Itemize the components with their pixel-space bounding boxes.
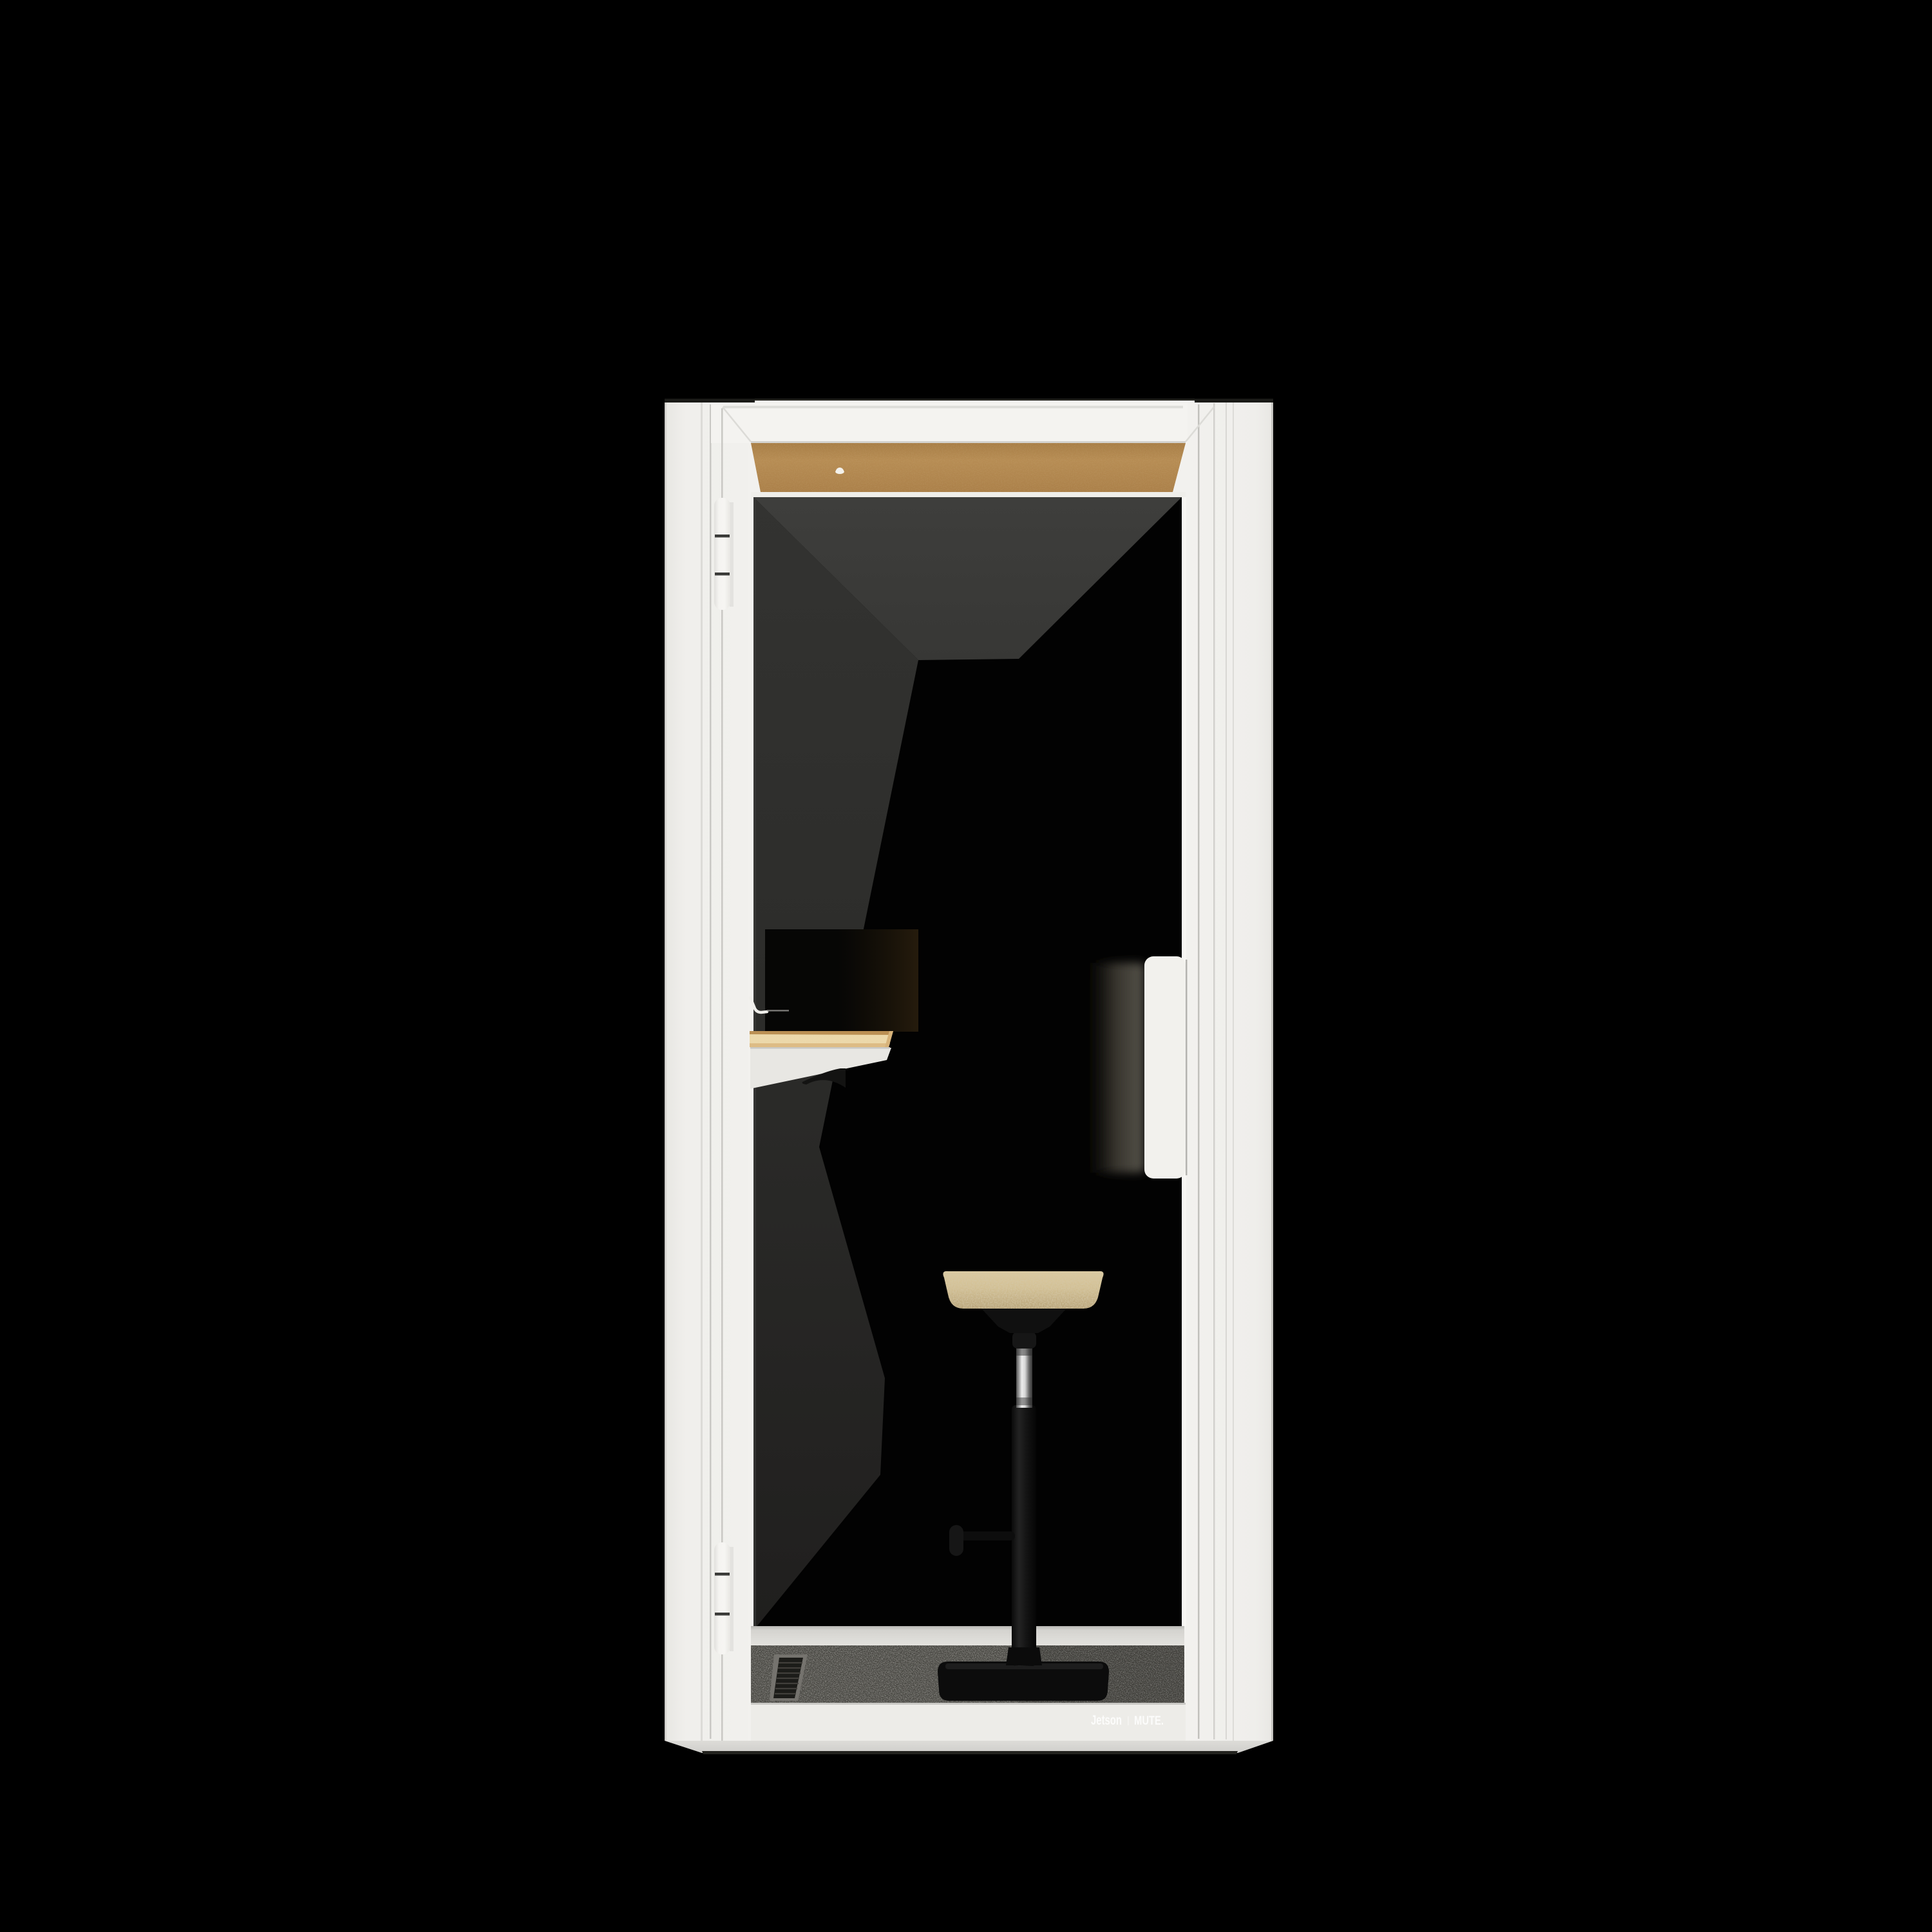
svg-text:|: | <box>1127 1715 1130 1726</box>
svg-text:MUTE.: MUTE. <box>1134 1714 1164 1728</box>
svg-text:Jetson: Jetson <box>1091 1713 1122 1728</box>
